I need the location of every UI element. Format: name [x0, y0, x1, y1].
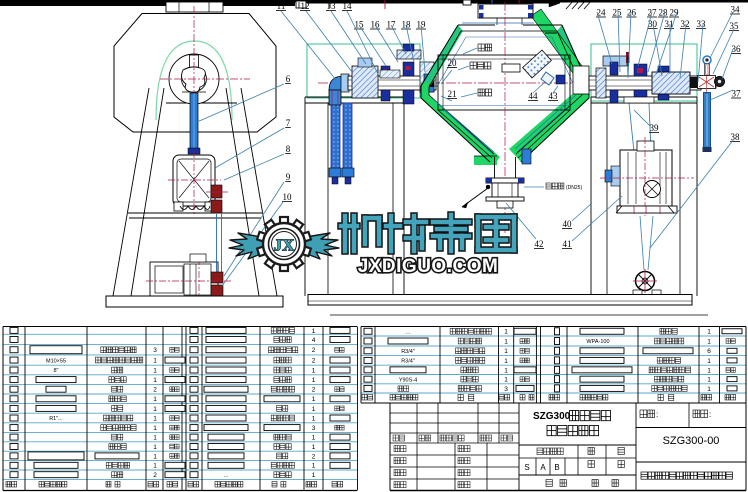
svg-text:2: 2	[312, 387, 316, 394]
svg-text:40: 40	[563, 219, 573, 229]
svg-text:3: 3	[504, 386, 508, 393]
svg-text:32: 32	[681, 19, 690, 29]
svg-text:1: 1	[153, 396, 157, 403]
svg-text:6: 6	[707, 348, 711, 355]
svg-text:WPA-100: WPA-100	[586, 339, 609, 345]
svg-text:15: 15	[355, 20, 365, 30]
svg-text:1: 1	[504, 377, 508, 384]
svg-text:33: 33	[697, 19, 707, 29]
svg-text:(DN25): (DN25)	[566, 185, 582, 191]
svg-text:3: 3	[312, 425, 316, 432]
svg-text:1: 1	[153, 425, 157, 432]
svg-text:1: 1	[504, 348, 508, 355]
svg-text:Y90S-4: Y90S-4	[399, 377, 417, 383]
svg-text:1: 1	[312, 377, 316, 384]
svg-text:1: 1	[153, 406, 157, 413]
svg-text:1: 1	[707, 377, 711, 384]
svg-text:1: 1	[504, 367, 508, 374]
svg-text:R1"...: R1"...	[49, 416, 63, 422]
svg-text:2: 2	[153, 387, 157, 394]
svg-text:1: 1	[312, 328, 316, 335]
svg-text:1: 1	[312, 415, 316, 422]
svg-text:20: 20	[448, 58, 458, 68]
svg-text:1: 1	[504, 329, 508, 336]
svg-text:1: 1	[153, 367, 157, 374]
svg-text:42: 42	[535, 239, 544, 249]
svg-text:SZG300-00: SZG300-00	[663, 435, 720, 447]
svg-text:21: 21	[448, 89, 457, 99]
svg-text:1: 1	[312, 463, 316, 470]
svg-text:17: 17	[387, 20, 397, 30]
svg-text:...: ...	[406, 329, 411, 335]
svg-text:1: 1	[707, 329, 711, 336]
svg-text:1: 1	[153, 453, 157, 460]
svg-text:1: 1	[153, 444, 157, 451]
svg-text:13: 13	[327, 1, 337, 11]
svg-text:1: 1	[504, 358, 508, 365]
svg-text:4: 4	[312, 337, 316, 344]
svg-text:M10×55: M10×55	[46, 358, 66, 364]
svg-text:2: 2	[312, 357, 316, 364]
svg-text:1: 1	[707, 386, 711, 393]
svg-text:1: 1	[312, 444, 316, 451]
svg-text::: :	[709, 410, 711, 419]
svg-text:S: S	[524, 463, 529, 472]
svg-text:34: 34	[731, 5, 741, 15]
svg-text:1: 1	[153, 435, 157, 442]
svg-text:A: A	[540, 463, 546, 472]
svg-text:2: 2	[312, 347, 316, 354]
svg-text:7: 7	[286, 118, 291, 128]
svg-text:10: 10	[283, 192, 293, 202]
svg-text:2: 2	[153, 472, 157, 479]
svg-text:3: 3	[153, 347, 157, 354]
svg-text:29: 29	[670, 8, 680, 18]
svg-text:35: 35	[730, 21, 740, 31]
svg-text:2: 2	[312, 453, 316, 460]
svg-text:28: 28	[659, 8, 669, 18]
svg-text:1: 1	[153, 463, 157, 470]
svg-text:25: 25	[613, 8, 623, 18]
svg-text:R3/4": R3/4"	[401, 349, 415, 355]
svg-text:8": 8"	[53, 368, 58, 374]
svg-text:1: 1	[707, 338, 711, 345]
svg-text:JX: JX	[274, 236, 296, 255]
svg-text:26: 26	[627, 8, 637, 18]
svg-text:R3/4": R3/4"	[401, 359, 415, 365]
svg-text:1: 1	[312, 435, 316, 442]
svg-text:1: 1	[312, 367, 316, 374]
svg-text:6: 6	[286, 74, 291, 84]
svg-text:1: 1	[312, 472, 316, 479]
svg-text:JXDIGUO.COM: JXDIGUO.COM	[358, 256, 499, 277]
svg-text:1: 1	[153, 377, 157, 384]
svg-text:16: 16	[371, 20, 381, 30]
svg-text:12: 12	[301, 1, 310, 11]
svg-text:1: 1	[153, 357, 157, 364]
svg-text:1: 1	[312, 396, 316, 403]
svg-text:14: 14	[343, 1, 353, 11]
svg-text:38: 38	[731, 132, 741, 142]
svg-text:9: 9	[286, 172, 291, 182]
svg-text:B: B	[554, 463, 559, 472]
svg-text:1: 1	[707, 358, 711, 365]
svg-text:41: 41	[563, 239, 572, 249]
svg-text:1: 1	[312, 406, 316, 413]
svg-text:SZG300: SZG300	[533, 411, 571, 422]
svg-text:39: 39	[650, 123, 660, 133]
svg-text:1: 1	[707, 367, 711, 374]
svg-text:1: 1	[504, 338, 508, 345]
svg-text:11: 11	[277, 1, 286, 11]
svg-text:...: ...	[224, 473, 229, 479]
svg-text::: :	[656, 410, 658, 419]
svg-text:1: 1	[153, 415, 157, 422]
svg-text:8: 8	[286, 144, 291, 154]
